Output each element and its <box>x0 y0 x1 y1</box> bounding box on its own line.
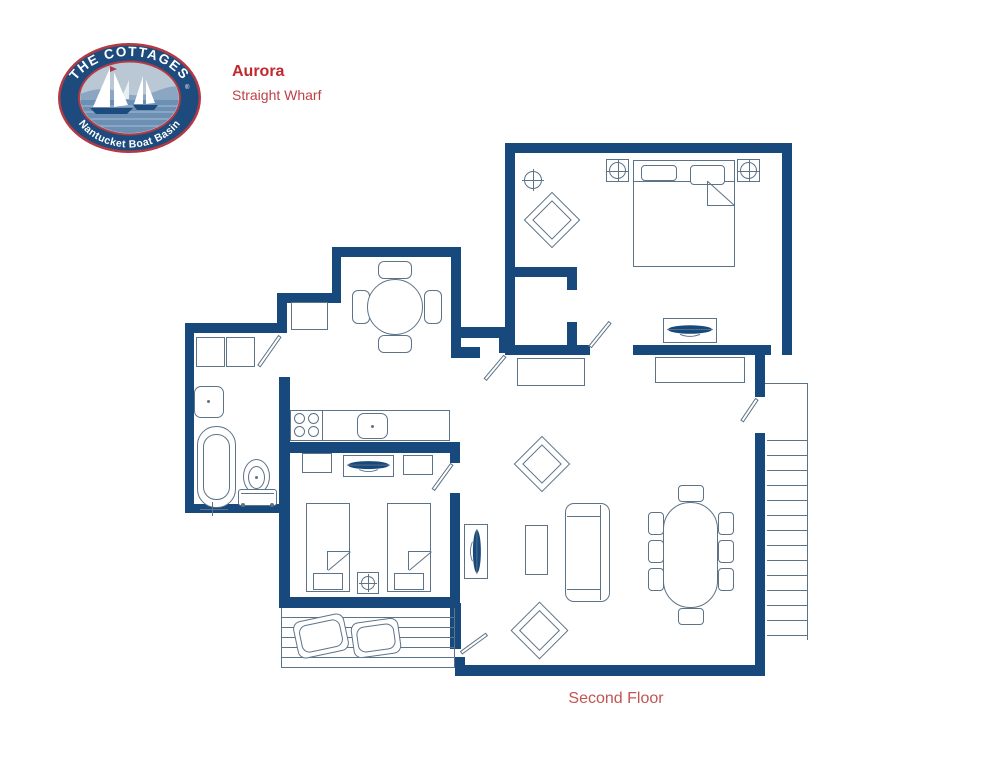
wall-living-bottom <box>455 665 765 676</box>
toilet-tank-line <box>241 493 274 494</box>
master-bed-fold <box>707 181 708 206</box>
wall-closet-stub-north <box>567 277 577 290</box>
ceiling-fixture-icon <box>361 576 375 590</box>
master-lamp-icon <box>740 162 757 179</box>
wall-stair-stub <box>755 352 765 397</box>
bath-door <box>257 335 281 368</box>
bathtub-faucet <box>200 509 228 510</box>
stove-divider <box>322 410 323 441</box>
twin-bed-footboard <box>313 573 343 590</box>
master-bed-fold <box>708 205 735 206</box>
sofa-arm <box>567 589 601 590</box>
deck-chair <box>350 617 403 659</box>
dining-chair <box>648 512 664 535</box>
bed2-nightstand <box>302 453 332 473</box>
sofa <box>565 503 610 602</box>
toilet-foot <box>241 503 245 507</box>
wall-bed2-bottom <box>279 597 457 608</box>
stove-burner <box>294 426 305 437</box>
nook-chair <box>378 335 412 353</box>
stove-burner <box>308 426 319 437</box>
master-door <box>588 321 611 348</box>
bath-cabinet <box>226 337 255 367</box>
living-accent-chair <box>514 436 571 493</box>
wall-bed2-right-south <box>450 493 460 603</box>
wall-kitchen-south <box>279 442 460 453</box>
alcove-cabinet <box>291 302 328 330</box>
stove-burner <box>308 413 319 424</box>
nook-table <box>367 279 423 335</box>
bath-sink-drain <box>207 400 210 403</box>
dining-chair <box>678 608 704 625</box>
twin-bed-fold <box>328 551 350 552</box>
master-corner-chair <box>524 192 581 249</box>
twin-bed-footboard <box>394 573 424 590</box>
dining-table <box>663 502 718 608</box>
twin-bed-fold <box>408 551 409 570</box>
twin-bed-fold <box>327 551 328 570</box>
wall-bath-left <box>185 323 194 513</box>
wall-alcove-left <box>277 303 287 323</box>
floor-plan <box>0 0 994 768</box>
dining-chair <box>718 512 734 535</box>
dining-chair <box>648 540 664 563</box>
dining-chair <box>718 540 734 563</box>
wall-hall-south-upper <box>461 327 501 338</box>
deck-door <box>460 633 488 655</box>
wall-bath-top <box>185 323 287 333</box>
wall-master-left <box>505 143 515 355</box>
wall-closet-top <box>515 267 577 277</box>
bed2-door <box>432 463 454 491</box>
nook-chair <box>424 290 442 324</box>
bathtub-inner <box>203 434 230 500</box>
coffee-table <box>525 525 548 575</box>
sofa-back <box>600 505 601 600</box>
living-console <box>655 357 745 383</box>
master-lamp-icon <box>609 162 626 179</box>
wall-closet-stub-south <box>567 322 577 345</box>
dining-chair <box>718 568 734 591</box>
floor-label: Second Floor <box>516 690 716 708</box>
bed2-nightstand <box>403 455 433 475</box>
dining-chair <box>678 485 704 502</box>
wall-master-top <box>505 143 792 153</box>
wall-bath-bed2-east <box>279 377 290 608</box>
wall-master-bottom-west <box>505 345 590 355</box>
hall-console <box>517 358 585 386</box>
stair-landing-edge <box>765 383 808 384</box>
toilet-foot <box>270 503 274 507</box>
master-tv-icon <box>666 322 714 339</box>
master-ceiling-fixture-icon <box>524 171 542 189</box>
living-tv-icon <box>468 528 484 575</box>
wall-hall-west <box>451 247 461 358</box>
dining-chair <box>648 568 664 591</box>
bath-cabinet <box>196 337 225 367</box>
bed2-tv-icon <box>346 458 391 474</box>
wall-bed2-right-north <box>450 442 460 463</box>
page: { "header": { "logo": { "top_text": "THE… <box>0 0 994 768</box>
stair-door <box>740 398 758 423</box>
wall-hall-stub <box>499 327 511 353</box>
wall-master-right <box>782 143 792 355</box>
staircase-treads <box>767 440 808 636</box>
sofa-arm <box>567 516 601 517</box>
kitchen-sink-drain <box>371 425 374 428</box>
twin-bed-fold <box>409 551 431 552</box>
wall-hall-south-lower <box>451 347 480 358</box>
stove-burner <box>294 413 305 424</box>
master-bed-pillow <box>641 165 677 181</box>
wall-living-right <box>755 433 765 676</box>
wall-master-bottom-east <box>633 345 771 355</box>
wall-nook-top <box>332 247 461 257</box>
living-accent-chair <box>511 602 569 660</box>
nook-chair <box>378 261 412 279</box>
toilet-drain <box>255 476 258 479</box>
wall-nook-left <box>332 247 341 293</box>
hall-door <box>484 355 507 381</box>
bathtub-faucet <box>212 502 213 516</box>
